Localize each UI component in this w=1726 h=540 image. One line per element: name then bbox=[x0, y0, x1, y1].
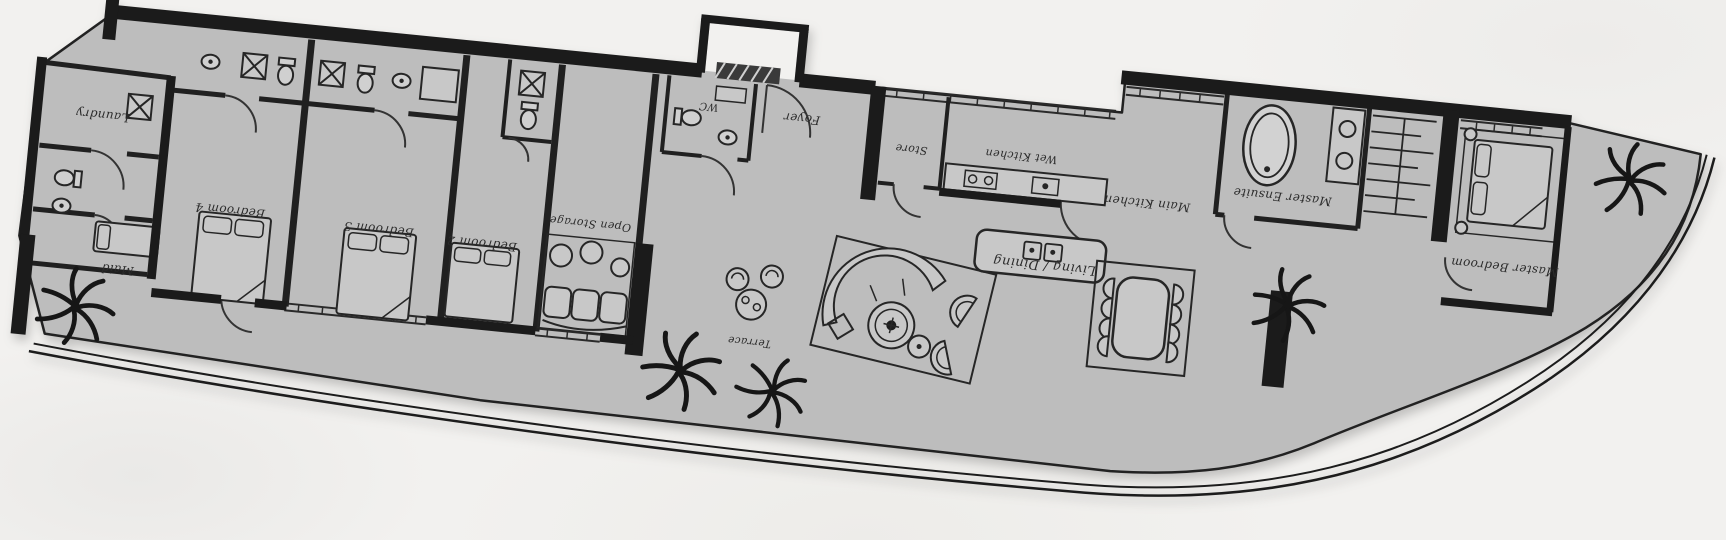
bed-bedroom4 bbox=[191, 211, 271, 304]
sink-icon bbox=[718, 130, 737, 146]
bathtub-icon bbox=[420, 67, 459, 102]
sink-icon bbox=[52, 198, 71, 214]
room-label-wc: WC bbox=[698, 99, 719, 113]
floor-plan-page: Laundry Maid Bedroom 4 Bedroom 3 Bedroom… bbox=[0, 0, 1726, 540]
sink-icon bbox=[392, 73, 411, 89]
sink-icon bbox=[201, 54, 220, 70]
bed-bedroom3 bbox=[336, 228, 416, 321]
floor-plan-canvas: Laundry Maid Bedroom 4 Bedroom 3 Bedroom… bbox=[0, 0, 1726, 540]
shower-icon bbox=[241, 53, 267, 79]
bed-bedroom2 bbox=[444, 243, 519, 323]
shower-icon bbox=[319, 61, 345, 87]
shower-icon bbox=[519, 71, 545, 97]
